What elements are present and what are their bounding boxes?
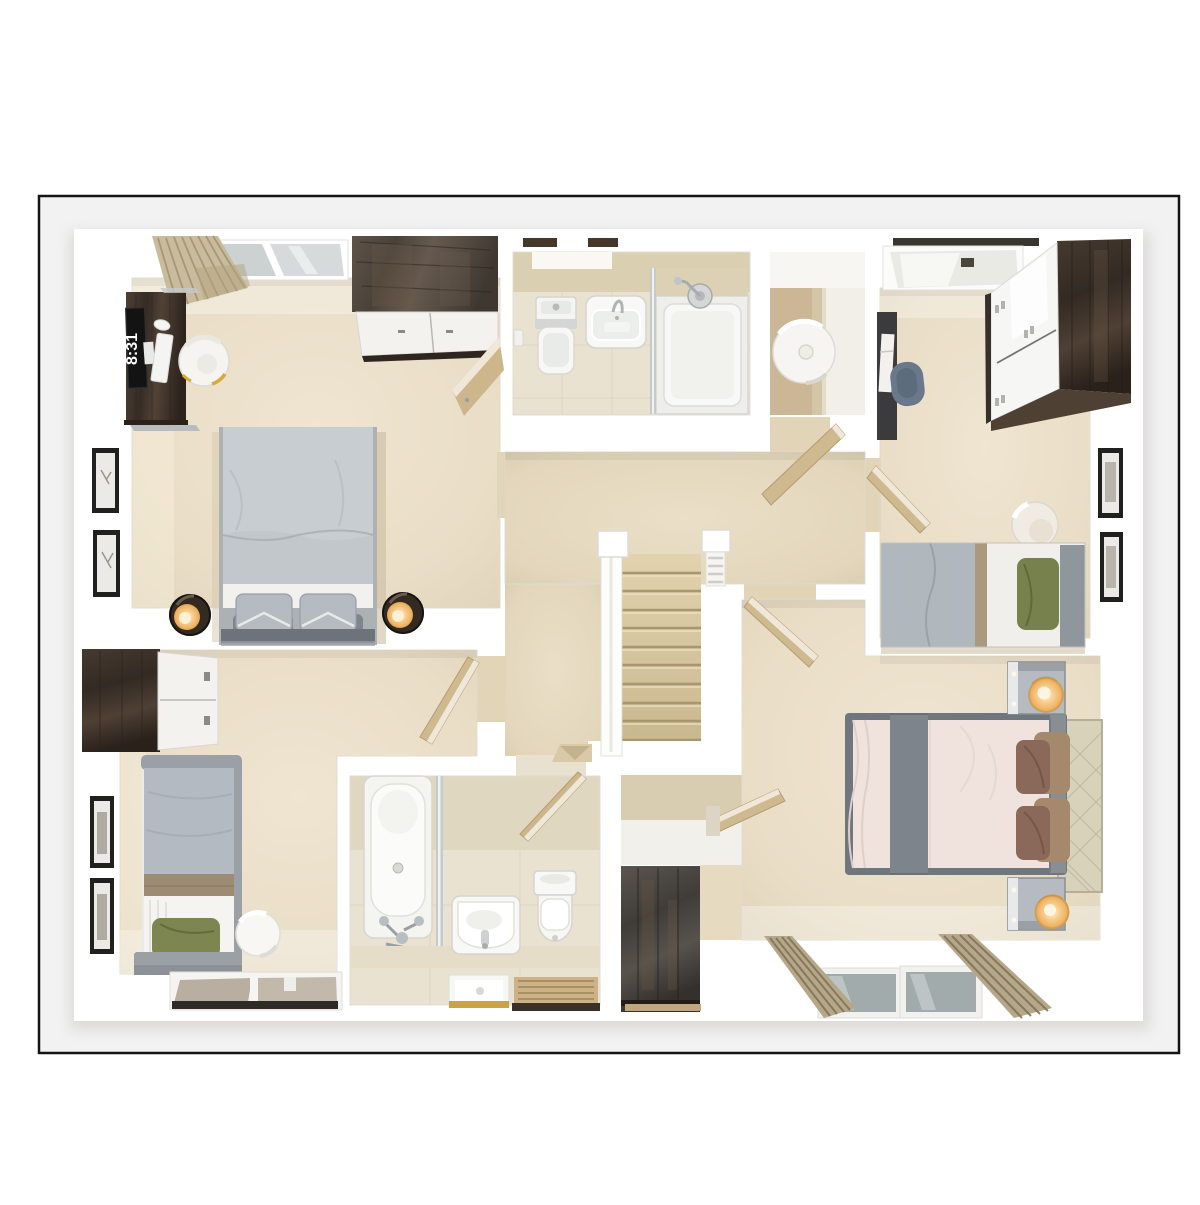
svg-text:8:31: 8:31 xyxy=(124,333,141,365)
